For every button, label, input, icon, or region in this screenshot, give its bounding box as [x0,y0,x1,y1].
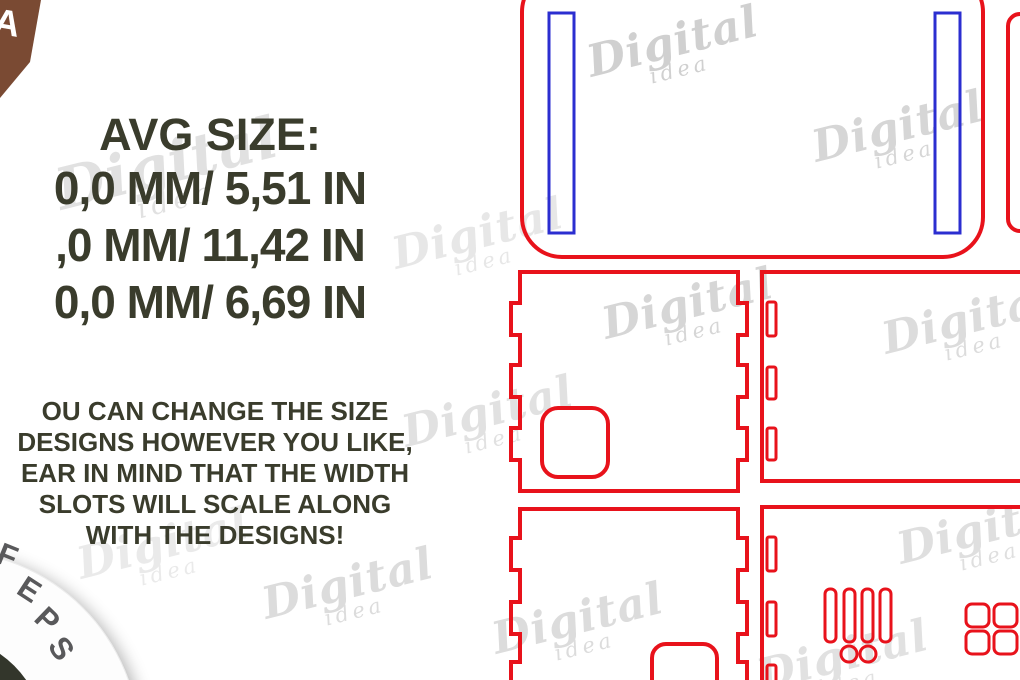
size-line-length: ,0 MM/ 11,42 IN [0,217,710,274]
size-line-height: 0,0 MM/ 6,69 IN [0,274,710,331]
note-line: EAR IN MIND THAT THE WIDTH [0,458,715,489]
joint-slot [767,367,776,399]
avg-size-block: AVG SIZE: 0,0 MM/ 5,51 IN ,0 MM/ 11,42 I… [0,110,710,331]
note-line: DESIGNS HOWEVER YOU LIKE, [0,427,715,458]
avg-size-heading: AVG SIZE: [0,110,710,160]
rounded-cutout-cropped [652,644,717,680]
joint-slot [767,602,776,636]
ribbon-letter: A [0,0,23,46]
square-hole [994,631,1017,654]
laser-template-drawing [0,0,1020,680]
joint-slot [767,428,776,460]
square-hole [966,631,989,654]
square-hole [966,604,989,627]
product-preview-image: F E P S Digital idea Digital idea Digita… [0,0,1020,680]
joint-slot [767,537,776,571]
note-line: WITH THE DESIGNS! [0,520,715,551]
round-hole [860,646,876,662]
vent-slot [862,589,873,642]
round-hole [841,646,857,662]
joint-slot [767,665,776,680]
tray-slot-right [935,13,960,233]
vent-slot [844,589,855,642]
note-line: OU CAN CHANGE THE SIZE [0,396,715,427]
box-panel-top-right [762,272,1020,481]
side-panel-cropped-right [1008,14,1020,231]
square-hole [994,604,1017,627]
size-line-width: 0,0 MM/ 5,51 IN [0,160,710,217]
joint-slot [767,302,776,336]
vent-slot [880,589,891,642]
note-line: SLOTS WILL SCALE ALONG [0,489,715,520]
resize-note-block: OU CAN CHANGE THE SIZE DESIGNS HOWEVER Y… [0,396,715,551]
vent-slot [825,589,836,642]
